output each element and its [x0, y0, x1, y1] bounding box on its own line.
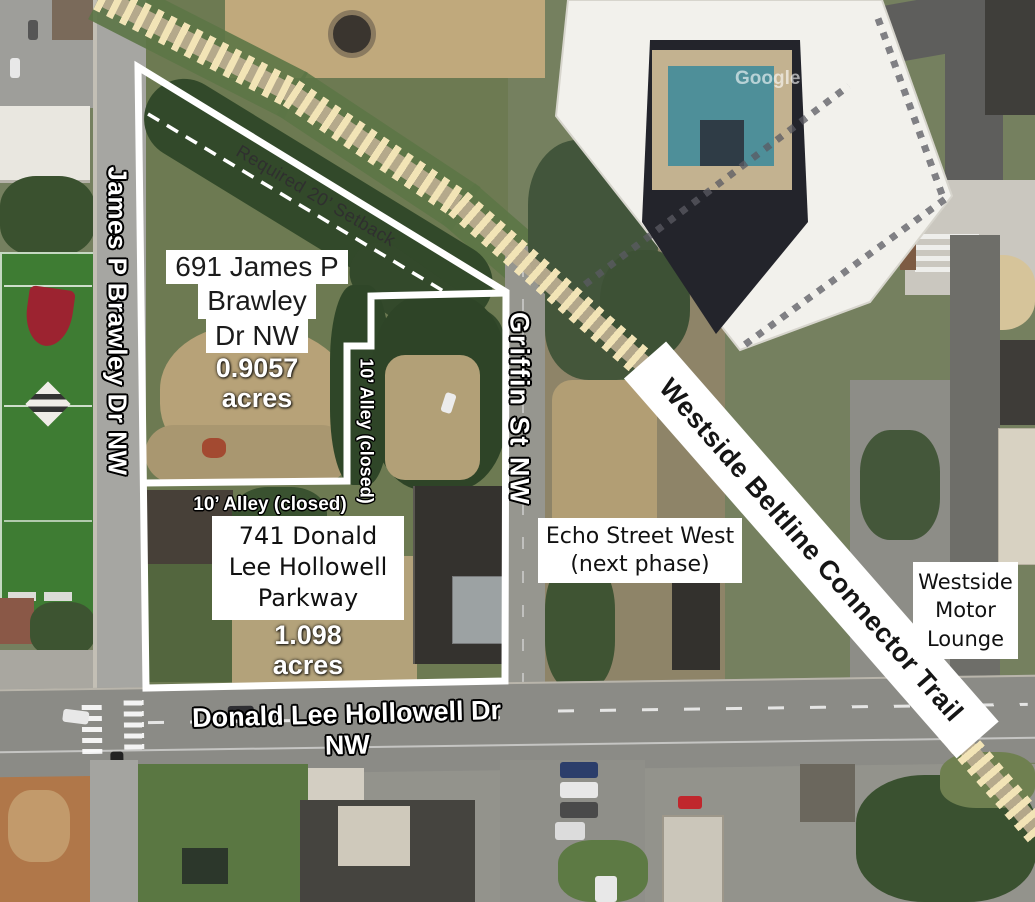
parcel-741-area-unit: acres	[212, 651, 404, 681]
parcel-691-area-value: 0.9057	[162, 354, 352, 384]
parcel-741-line1: 741 Donald	[212, 521, 404, 552]
motor-line2: Motor	[913, 596, 1018, 624]
street-label-donald-lee-hollowell: Donald Lee Hollowell Dr NW	[171, 694, 523, 765]
parcel-741-line2: Lee Hollowell	[212, 552, 404, 583]
parcel-741-area: 1.098 acres	[212, 621, 404, 680]
parcel-691-line2: Brawley	[198, 284, 316, 318]
echo-line1: Echo Street West	[538, 523, 742, 551]
motor-line3: Lounge	[913, 625, 1018, 653]
parcel-741-area-value: 1.098	[212, 621, 404, 651]
westside-motor-lounge-label: Westside Motor Lounge	[913, 562, 1018, 659]
parcel-691-line1: 691 James P	[166, 250, 347, 284]
motor-line1: Westside	[913, 568, 1018, 596]
echo-street-west-label: Echo Street West (next phase)	[538, 518, 742, 583]
street-label-griffin: Griffin St NW	[504, 312, 535, 506]
annotated-aerial-map: Google	[0, 0, 1035, 902]
echo-line2: (next phase)	[538, 551, 742, 579]
parcel-691-label: 691 James P Brawley Dr NW	[162, 250, 352, 353]
alley-label-horizontal: 10’ Alley (closed)	[190, 494, 350, 516]
parcel-741-label: 741 Donald Lee Hollowell Parkway	[212, 516, 404, 620]
street-label-james-p-brawley: James P Brawley Dr NW	[102, 166, 133, 475]
parcel-691-area-unit: acres	[162, 384, 352, 414]
parcel-691-area: 0.9057 acres	[162, 354, 352, 413]
parcel-741-line3: Parkway	[212, 583, 404, 614]
parcel-691-line3: Dr NW	[206, 319, 308, 353]
alley-label-vertical: 10’ Alley (closed)	[356, 358, 377, 503]
